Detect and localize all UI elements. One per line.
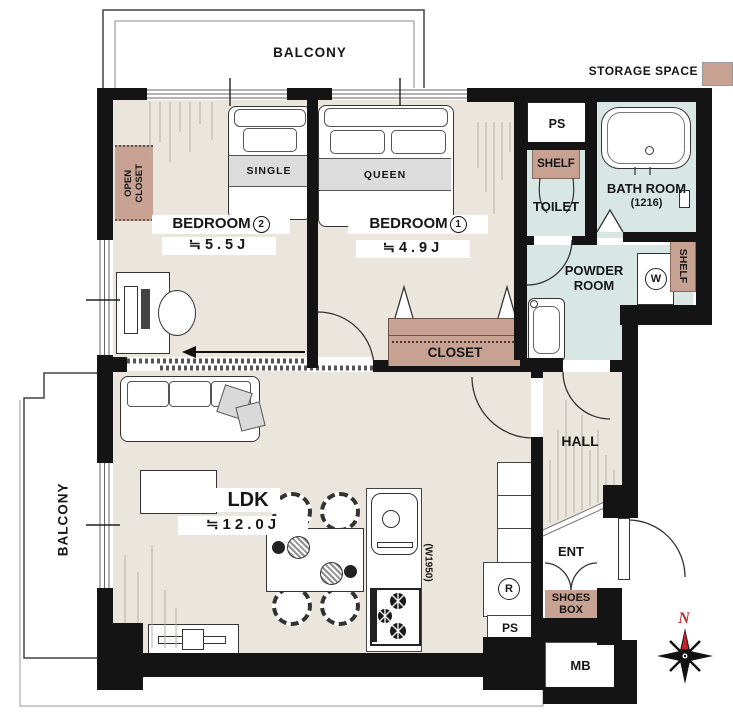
wall [620,305,712,325]
wall [527,142,585,150]
wall [143,653,483,677]
kitchen-width-label: (W1950) [423,515,434,611]
compass-rose [652,626,718,702]
wall [696,100,712,325]
bedroom2-number: 2 [253,216,270,233]
bedroom2-size: ≒5.5J [162,237,276,255]
entrance-label: ENT [547,545,595,559]
wall [585,100,597,238]
balcony-left-label: BALCONY [57,471,72,567]
wall [97,88,113,240]
powder-room-label: POWDER ROOM [555,263,633,293]
wall [531,372,543,378]
wall [603,485,638,518]
wall [483,637,545,690]
hall-label: HALL [552,434,608,449]
bedroom1-name-text: BEDROOM [369,216,447,233]
wall [520,358,563,372]
north-label: N [668,610,700,628]
shoes-box-label: SHOES [552,592,591,604]
bedroom1-size: ≒4.9J [356,240,470,258]
ldk-name: LDK [216,488,280,512]
wall [622,325,638,487]
wall [543,618,614,642]
floor-plan: OPEN CLOSET SINGLE QUEEN CLOSET [0,0,733,714]
powder-room-line1: POWDER [555,263,633,278]
bathroom-label: BATH ROOM [598,182,695,196]
wall [514,100,527,360]
ldk-size: ≒12.0J [178,516,308,535]
bedroom1-number: 1 [450,216,467,233]
wall [307,100,318,368]
wall [97,623,143,690]
wall [531,437,543,637]
wall [572,236,597,245]
entrance-door-leaf [618,518,630,580]
bedroom2-name-text: BEDROOM [172,216,250,233]
wall [97,355,113,463]
wall [514,236,534,245]
wall [614,640,637,690]
wall [388,366,520,372]
wall [623,232,696,242]
shoes-box: SHOES BOX [545,590,597,618]
wall [113,357,127,372]
wall [287,88,332,100]
bathroom-size: (1216) [598,197,695,209]
shoes-box-label: BOX [559,604,583,616]
toilet-label: TOILET [528,200,584,214]
bedroom2-name: BEDROOM2 [152,215,290,234]
storage-legend-label: STORAGE SPACE [560,65,698,78]
wall [373,360,388,372]
bedroom1-name: BEDROOM1 [348,215,488,234]
powder-room-line2: ROOM [555,278,633,293]
balcony-top-label: BALCONY [240,46,380,61]
wall [610,360,623,372]
